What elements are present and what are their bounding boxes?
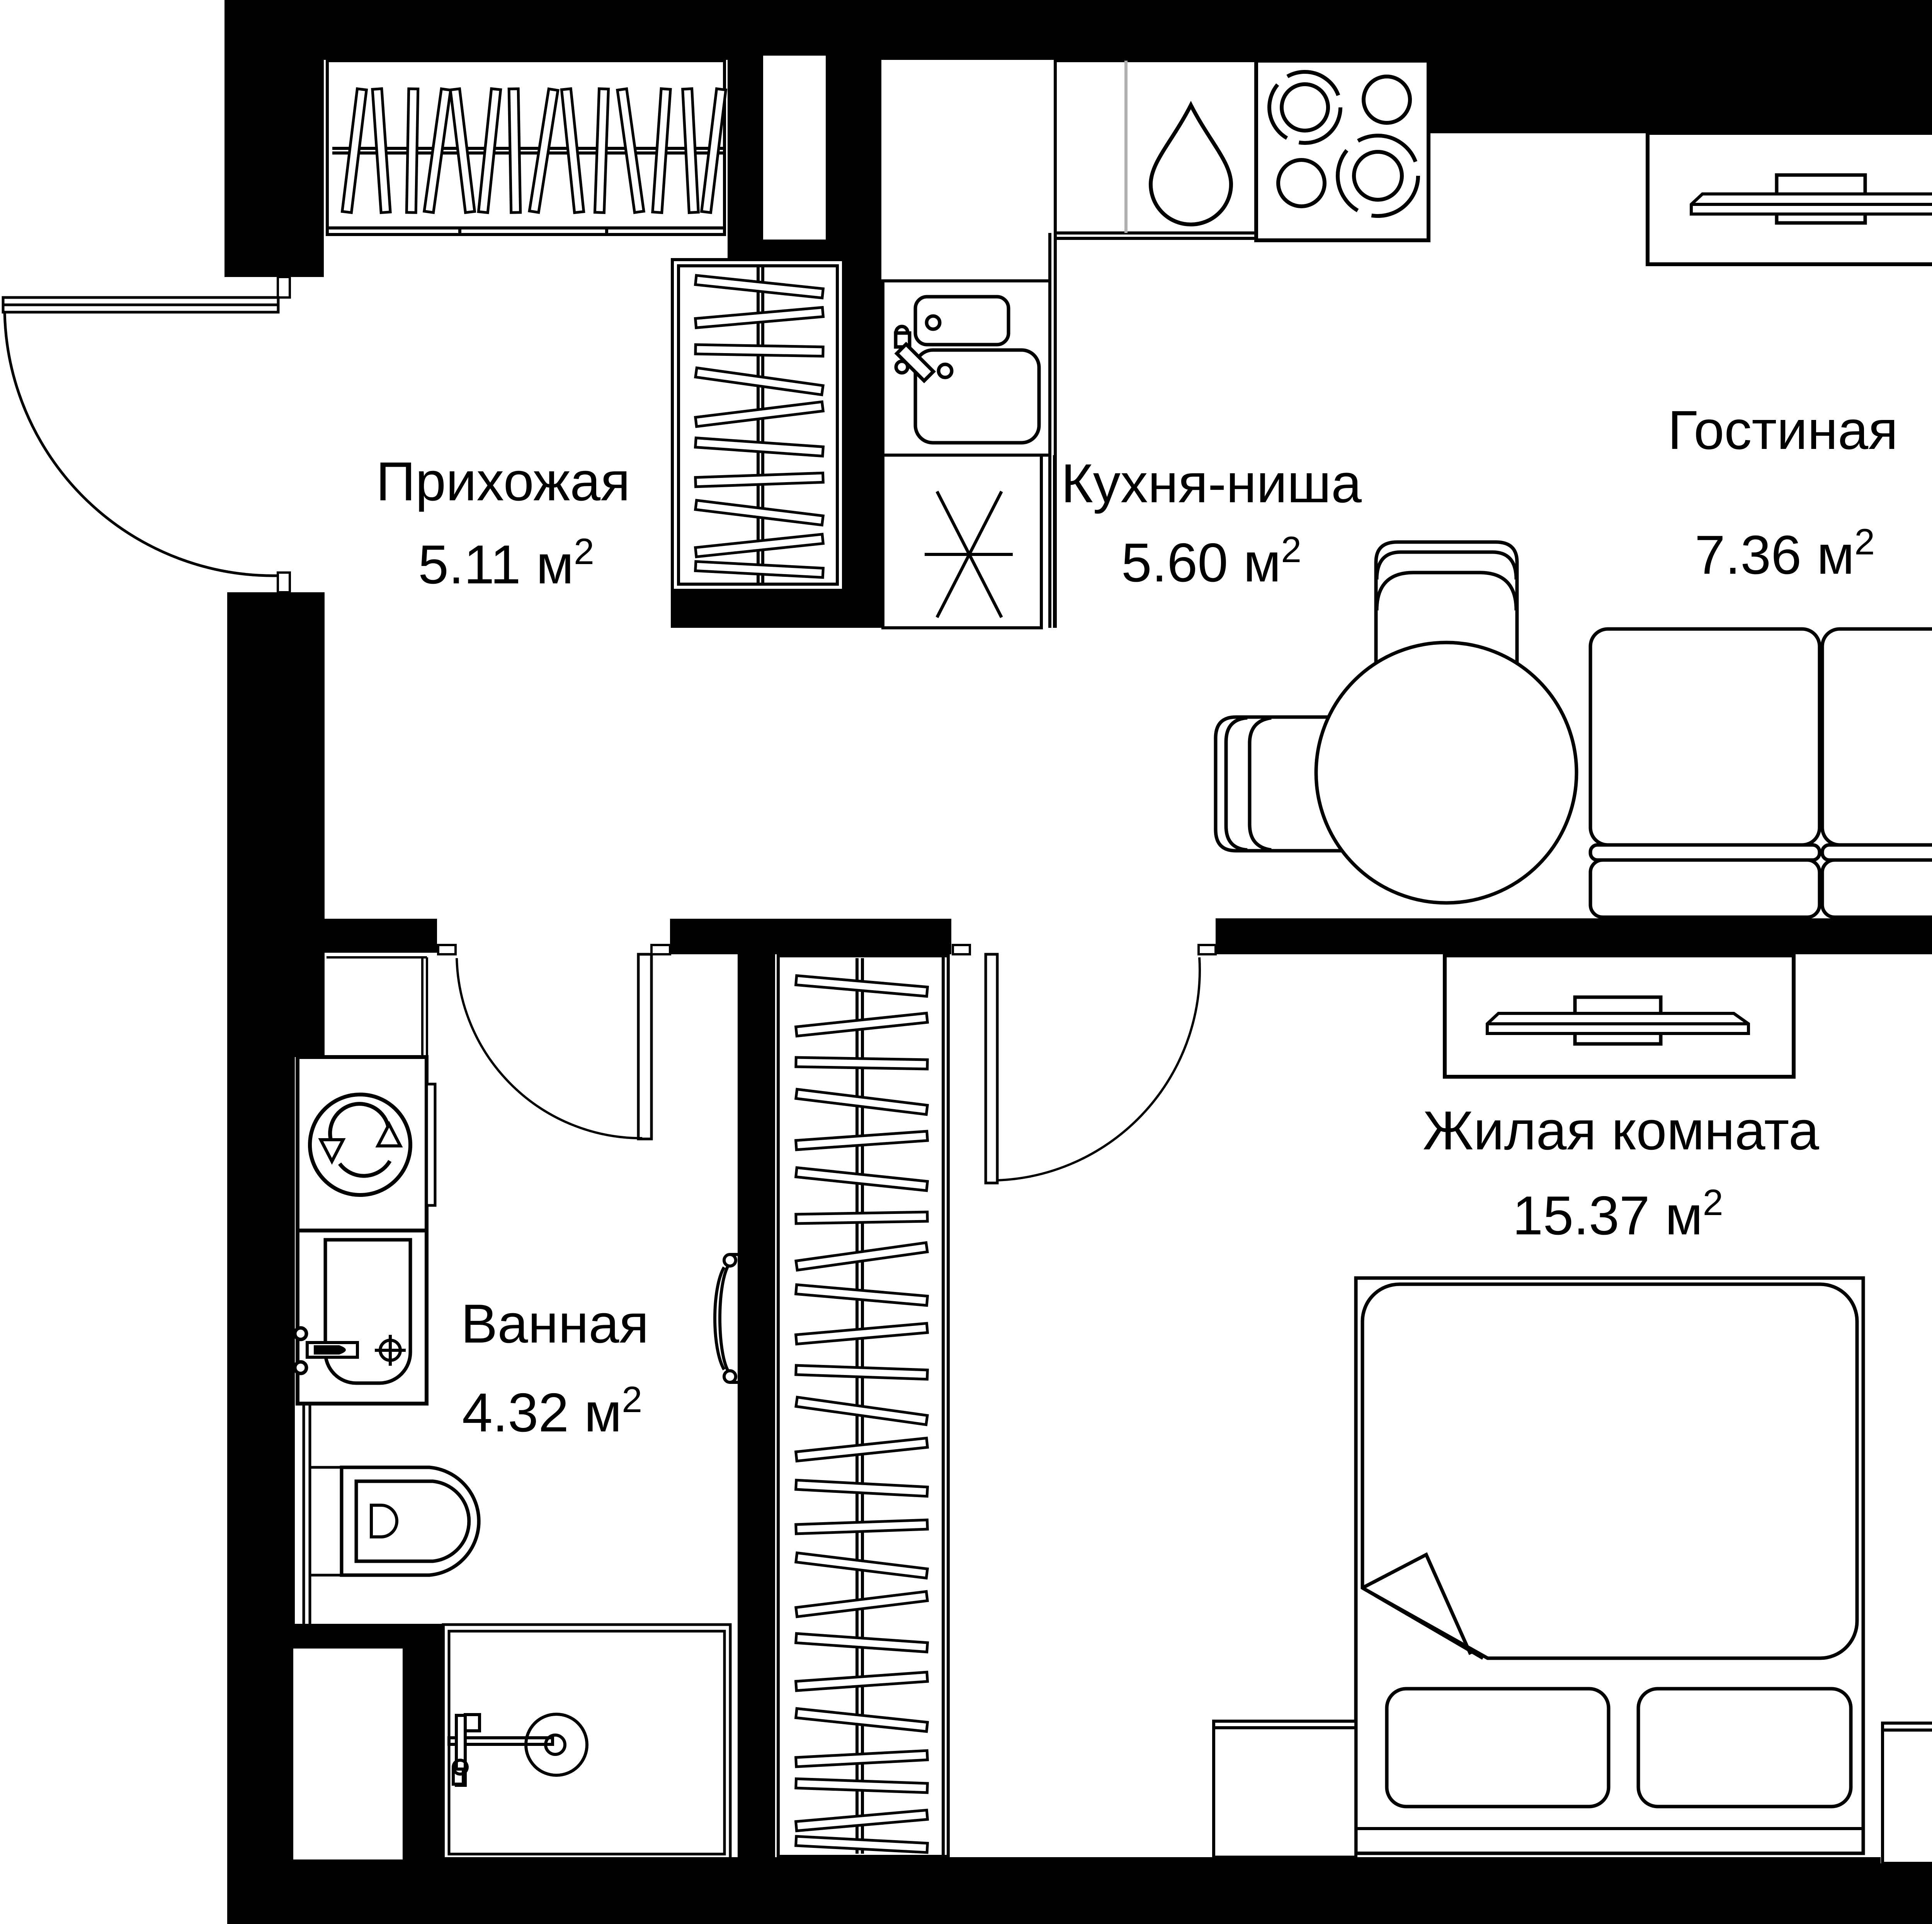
svg-text:15.37 м2: 15.37 м2 bbox=[1512, 1182, 1723, 1246]
svg-text:4.32 м2: 4.32 м2 bbox=[462, 1379, 642, 1443]
svg-text:5.60 м2: 5.60 м2 bbox=[1121, 529, 1301, 593]
svg-text:Ванная: Ванная bbox=[461, 1293, 649, 1355]
svg-text:Прихожая: Прихожая bbox=[376, 451, 630, 512]
svg-text:7.36 м2: 7.36 м2 bbox=[1695, 522, 1875, 586]
svg-text:5.11 м2: 5.11 м2 bbox=[418, 531, 594, 595]
svg-text:Гостиная: Гостиная bbox=[1668, 399, 1898, 461]
svg-text:Жилая комната: Жилая комната bbox=[1423, 1100, 1819, 1161]
svg-text:Кухня-ниша: Кухня-ниша bbox=[1061, 453, 1362, 514]
